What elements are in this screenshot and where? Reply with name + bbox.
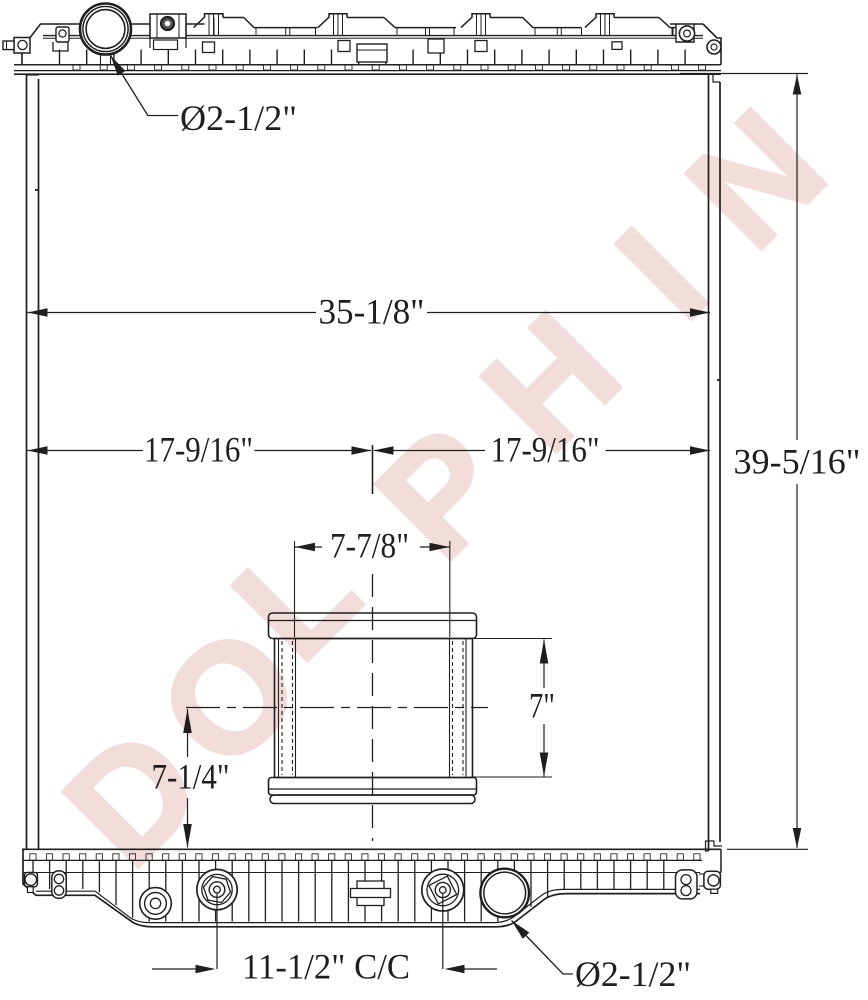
svg-text:39-5/16": 39-5/16" xyxy=(734,442,861,482)
svg-text:Ø2-1/2": Ø2-1/2" xyxy=(180,98,297,138)
svg-text:Ø2-1/2": Ø2-1/2" xyxy=(575,954,691,994)
svg-text:17-9/16": 17-9/16" xyxy=(491,430,600,470)
svg-text:7": 7" xyxy=(529,686,555,726)
svg-text:17-9/16": 17-9/16" xyxy=(144,430,253,470)
svg-text:11-1/2" C/C: 11-1/2" C/C xyxy=(242,947,410,987)
svg-text:7-7/8": 7-7/8" xyxy=(330,526,409,566)
svg-text:35-1/8": 35-1/8" xyxy=(319,292,425,332)
svg-text:7-1/4": 7-1/4" xyxy=(152,757,230,797)
